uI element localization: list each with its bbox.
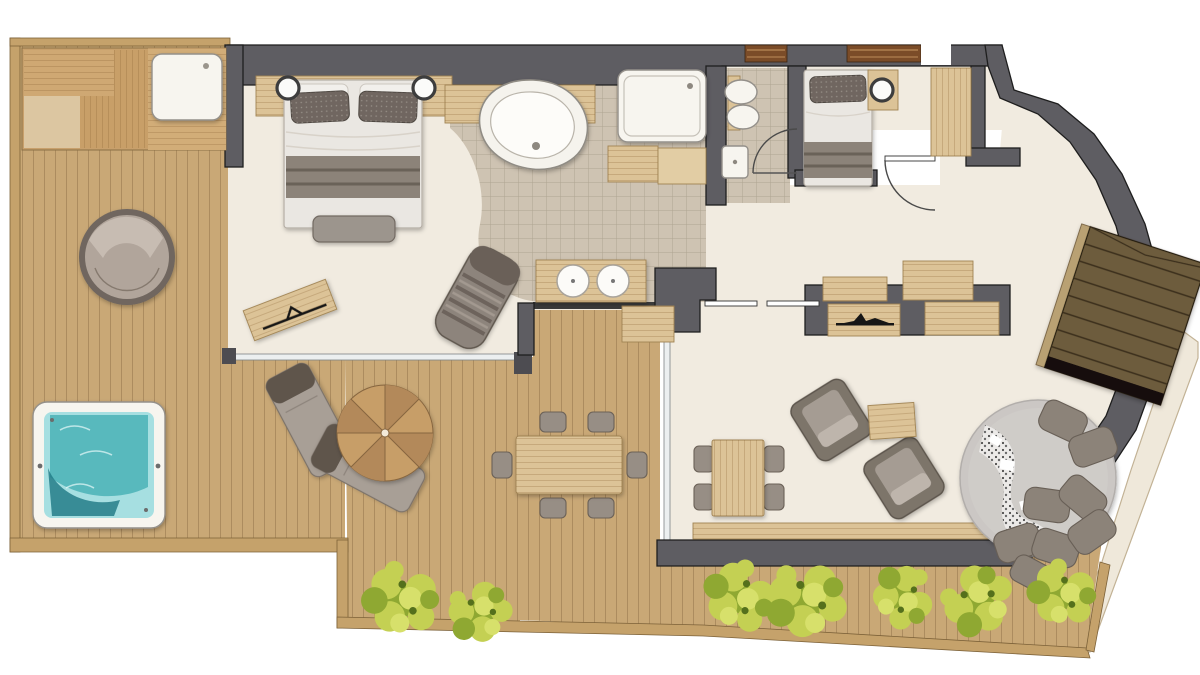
sliding-door-dash-2 xyxy=(767,301,819,306)
wall-bath-wc xyxy=(706,66,726,205)
wall-wc-bedroom2 xyxy=(788,66,806,178)
outdoor-chair xyxy=(588,498,614,518)
window-wood-2 xyxy=(847,45,921,62)
foot-bench xyxy=(313,216,395,242)
window-wood-1 xyxy=(745,45,787,62)
deck-fascia-left xyxy=(10,38,20,552)
wall-bedroom1-left xyxy=(225,45,243,167)
bedside-lamp xyxy=(277,77,299,99)
bidet xyxy=(727,105,759,129)
bedside-lamp xyxy=(413,77,435,99)
bed-2 xyxy=(804,70,872,186)
entry-door-leaf xyxy=(885,156,935,161)
outdoor-chair xyxy=(540,412,566,432)
double-vanity xyxy=(536,260,646,302)
deck-fascia-bottom-left xyxy=(10,538,348,552)
wall-post xyxy=(518,303,534,355)
entry-top-opening xyxy=(921,43,951,65)
sauna-area xyxy=(22,48,226,150)
bedside-lamp xyxy=(871,79,893,101)
bedroom1-glass-wall xyxy=(228,354,520,360)
outdoor-chair xyxy=(588,412,614,432)
storage-box xyxy=(622,306,674,342)
dining-chair xyxy=(764,484,784,510)
living-west-glass-wall xyxy=(664,332,670,540)
floor-plan-svg xyxy=(0,0,1200,675)
outdoor-shower-tray xyxy=(152,54,222,120)
glass-post xyxy=(222,348,236,364)
round-daybed xyxy=(79,209,175,305)
outdoor-chair xyxy=(540,498,566,518)
bath-cabinet xyxy=(658,148,706,184)
shower-drain xyxy=(203,63,209,69)
double-bed xyxy=(284,80,422,228)
dining-chair xyxy=(694,484,714,510)
wall-right-of-wardrobe xyxy=(971,66,985,150)
outdoor-chair xyxy=(492,452,512,478)
sauna-platform xyxy=(24,96,80,148)
hot-tub xyxy=(33,402,165,528)
sliding-door-dash-1 xyxy=(705,301,757,306)
sculpture-base xyxy=(836,323,894,326)
outdoor-chair xyxy=(627,452,647,478)
dining-chair xyxy=(764,446,784,472)
wall-entry-step xyxy=(966,148,1020,166)
floor-plan xyxy=(0,0,1200,675)
walk-in-shower xyxy=(618,70,706,142)
dining-chair xyxy=(694,446,714,472)
parasol xyxy=(337,385,433,481)
deck-fascia-step xyxy=(337,540,348,628)
toilet xyxy=(725,80,757,104)
side-table xyxy=(868,402,916,439)
deck-fascia-top xyxy=(10,38,230,46)
